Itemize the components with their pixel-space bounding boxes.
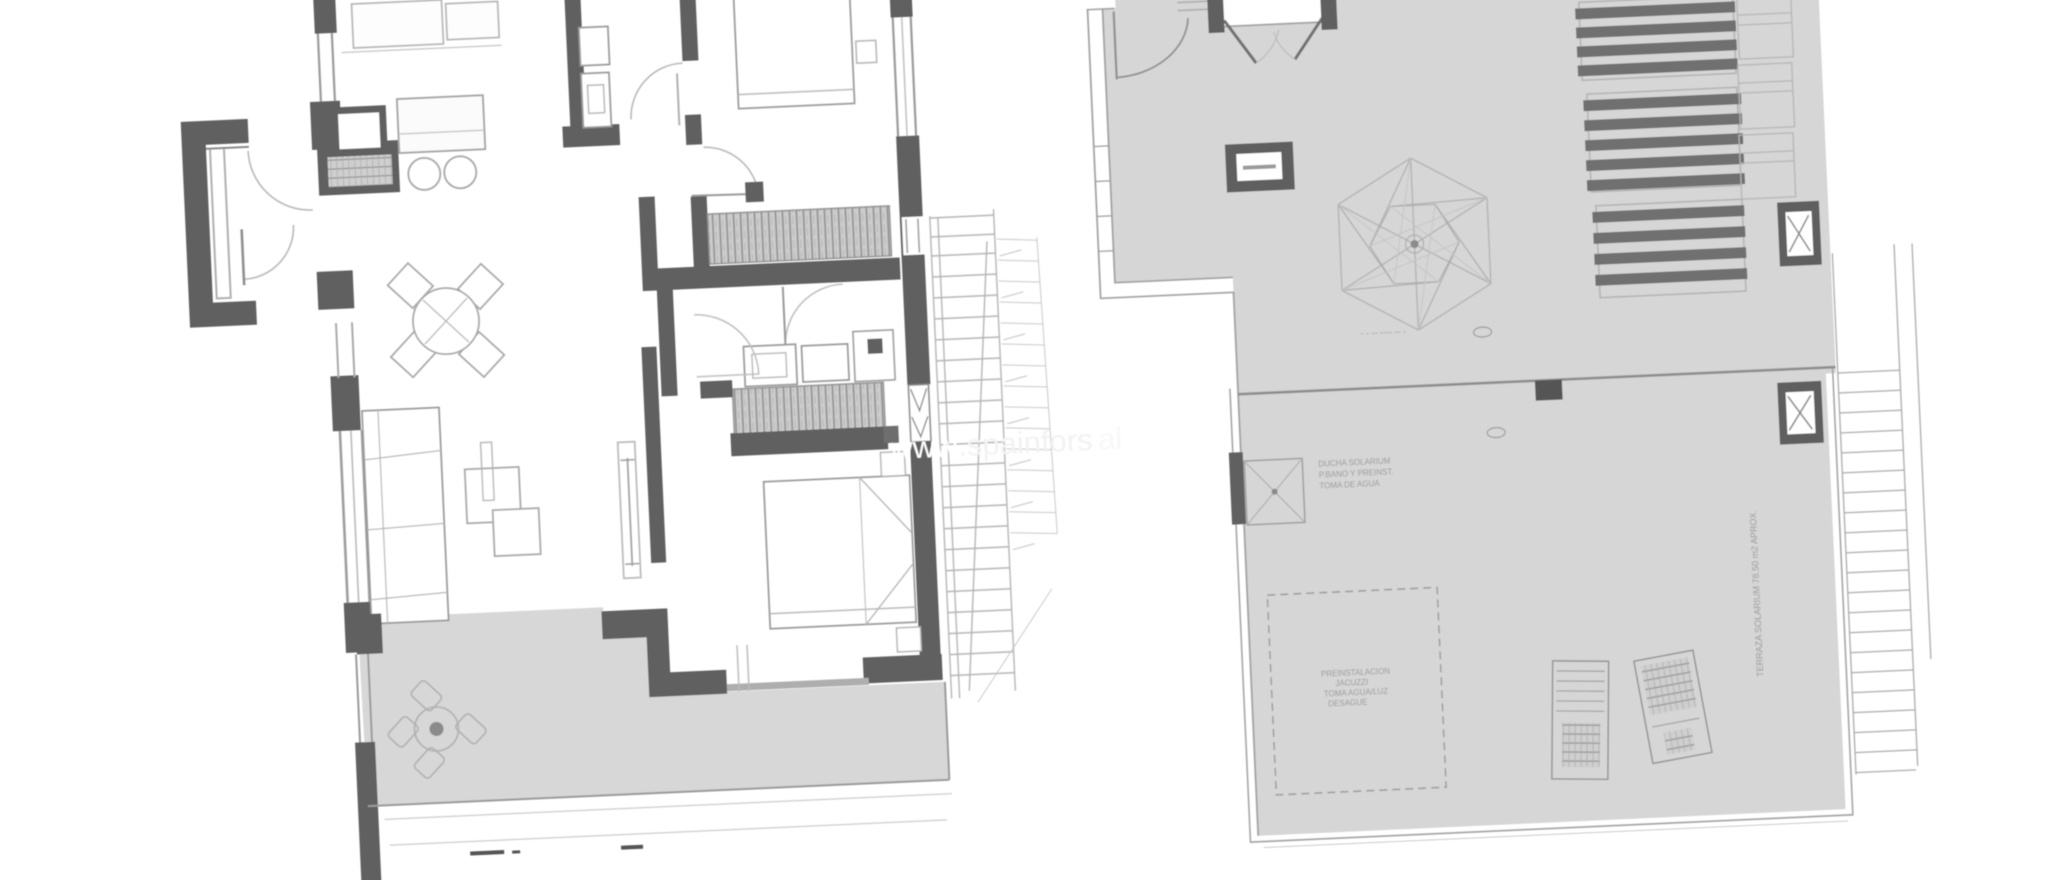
svg-text:.spainfors: .spainfors: [957, 422, 1093, 463]
svg-text:DESAGUE: DESAGUE: [1328, 698, 1367, 709]
svg-text:al: al: [1097, 421, 1123, 457]
svg-text:www: www: [888, 428, 958, 466]
svg-text:- - -- ---- -- -: - - -- ---- -- -: [1360, 327, 1406, 339]
svg-text:JACUZZI: JACUZZI: [1335, 678, 1368, 688]
